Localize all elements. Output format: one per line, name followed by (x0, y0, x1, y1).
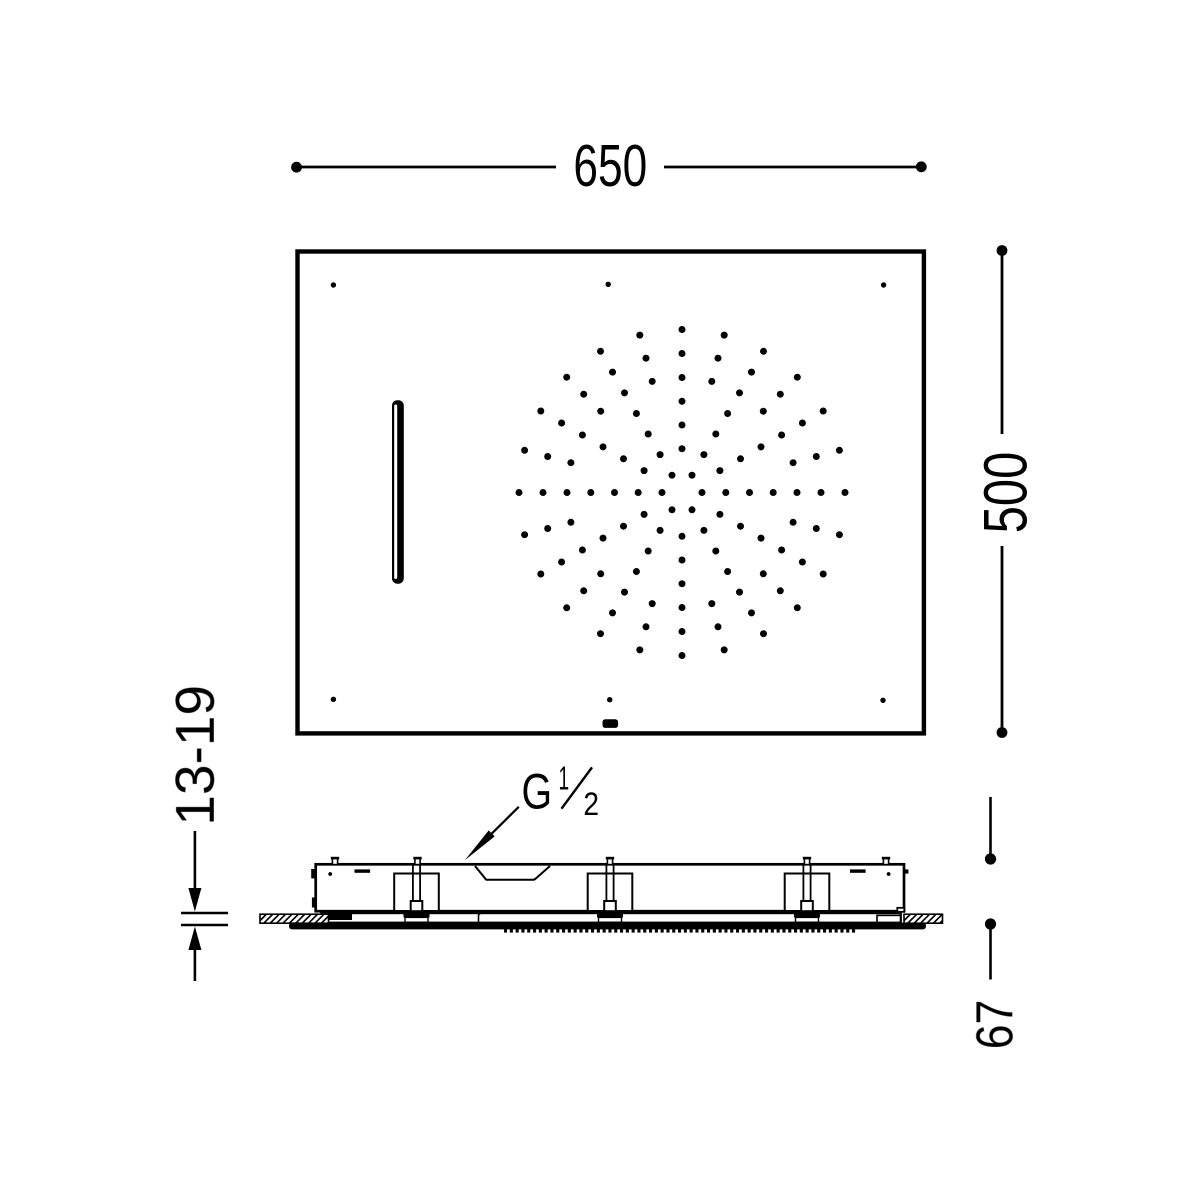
svg-text:13-19: 13-19 (164, 685, 226, 826)
svg-text:500: 500 (971, 452, 1039, 533)
svg-text:650: 650 (573, 134, 647, 200)
svg-text:2: 2 (583, 786, 599, 822)
svg-text:67: 67 (966, 1000, 1024, 1050)
svg-text:G: G (522, 763, 553, 820)
svg-text:1: 1 (559, 760, 570, 797)
